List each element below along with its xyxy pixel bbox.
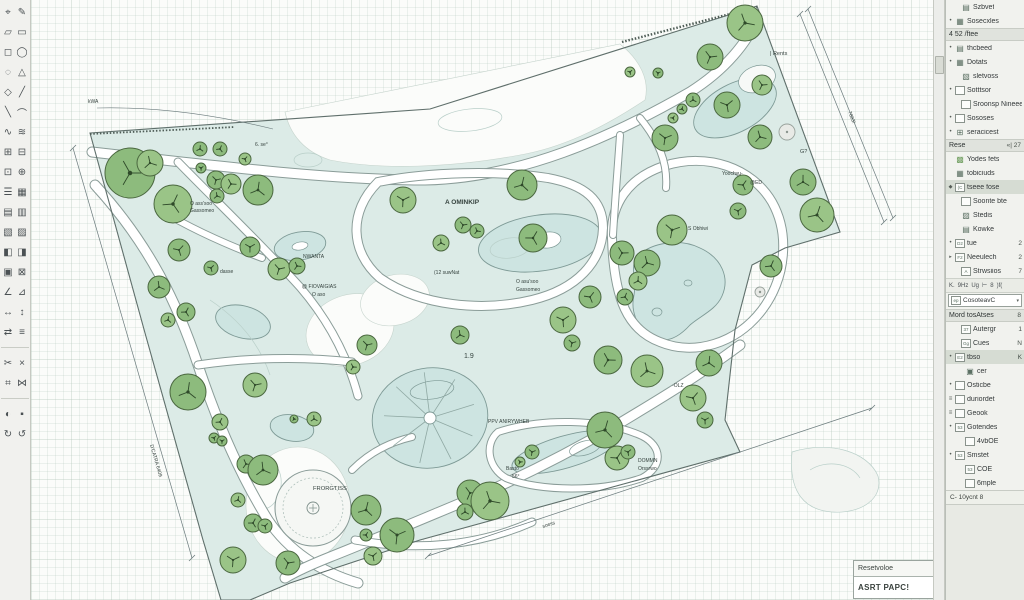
panel-item-label: Sosecxles — [967, 18, 999, 25]
layer-type-icon: ▧ — [961, 72, 971, 81]
visibility-bullet-icon: ≡ — [948, 396, 953, 402]
layer-type-icon: Gg — [961, 339, 971, 348]
panel-list-item[interactable]: ◆(Ctseee fose — [946, 180, 1024, 194]
tree-center — [519, 461, 521, 463]
tree-center — [802, 181, 804, 183]
layer-type-icon: ▤ — [955, 44, 965, 53]
panel-item-label: tseee fose — [967, 184, 999, 191]
layer-type-icon: ▦ — [955, 17, 965, 26]
panel-list-item[interactable]: AStrwsiios7 — [946, 264, 1024, 278]
plan-annotation: ◦OLZ — [672, 383, 684, 389]
checkbox-icon[interactable] — [961, 197, 971, 206]
dimension-tick — [881, 219, 887, 225]
move-vertical-icon[interactable]: ↕ — [15, 302, 29, 322]
drawing-canvas[interactable]: kWA6. se°| RentsA OMINKIPO ass'sooGassom… — [31, 0, 933, 600]
contour-line — [791, 447, 879, 512]
visibility-bullet-icon: • — [948, 424, 953, 430]
layer-type-icon: 53 — [955, 451, 965, 460]
layer-type-icon: ▦ — [955, 58, 965, 67]
plan-annotation: O aso — [312, 292, 326, 298]
plan-annotation: (12 suwNat — [434, 270, 460, 276]
panel-item-label: duriordet — [967, 396, 995, 403]
half-left-icon[interactable]: ◧ — [1, 242, 15, 262]
panel-list-item[interactable]: ▤Szbvet — [946, 0, 1024, 14]
right-panel: ▤Szbvet•▦Sosecxles4 52 /ftee•▤thcbeed•▦D… — [945, 0, 1024, 600]
tree-center — [395, 533, 398, 536]
panel-item-label: Cues — [973, 340, 989, 347]
tree-center — [571, 342, 573, 344]
plan-annotation: kWA — [88, 99, 99, 105]
tree-center — [709, 56, 711, 58]
tree-center — [237, 499, 239, 501]
polygon-tool-icon[interactable]: ▱ — [1, 22, 15, 42]
tree-center — [264, 525, 266, 527]
tree-center — [704, 419, 706, 421]
title-block-name: Resetvoloe — [858, 565, 893, 572]
tree-center — [296, 265, 298, 267]
checkbox-icon[interactable] — [955, 381, 965, 390]
item-count-badge: K — [1018, 354, 1022, 361]
undo-icon[interactable]: ↺ — [15, 424, 29, 444]
panel-item-label: Smstet — [967, 452, 989, 459]
layer-type-icon: ▨ — [961, 211, 971, 220]
layer-type-icon: 37 — [961, 325, 971, 334]
layer-type-icon: ▩ — [955, 155, 965, 164]
removed-tree-center — [786, 131, 788, 133]
tree-center — [476, 230, 478, 232]
plan-annotation: G? — [800, 149, 807, 155]
tree-center — [365, 509, 368, 512]
swatch-tool-icon[interactable]: ▪ — [15, 404, 29, 424]
panel-list-item[interactable]: •Sotttsor — [946, 83, 1024, 97]
waves-tool-icon[interactable]: ≋ — [15, 122, 29, 142]
plan-annotation: Gassomeo — [190, 208, 214, 214]
hatch-horizontal-icon[interactable]: ▤ — [1, 202, 15, 222]
fountain-hub — [424, 412, 436, 424]
mini-tool-icon[interactable]: ⊢ — [982, 282, 987, 289]
tree-center — [488, 499, 491, 502]
visibility-bullet-icon: • — [948, 129, 953, 135]
item-count-badge: N — [1017, 340, 1022, 347]
panel-list-item[interactable]: •E2tbsoK — [946, 350, 1024, 364]
visibility-bullet-icon: • — [948, 240, 953, 246]
combo-icon: ep — [951, 296, 961, 305]
panel-list-item[interactable]: ▨Stedis — [946, 208, 1024, 222]
checkbox-icon[interactable] — [955, 86, 965, 95]
panel-footer: C- 10ycnt 8 — [946, 490, 1024, 505]
tree-center — [464, 511, 466, 513]
panel-item-label: Geook — [967, 410, 988, 417]
panel-list-item[interactable]: •▦Sosecxles — [946, 14, 1024, 28]
square-tool-icon[interactable]: ◻ — [1, 42, 15, 62]
panel-list-item[interactable]: 6mple — [946, 476, 1024, 490]
visibility-bullet-icon: • — [948, 87, 953, 93]
tree-center — [562, 319, 564, 321]
layer-type-icon: ▤ — [961, 225, 971, 234]
tree-center — [815, 213, 818, 216]
line-tool-icon[interactable]: ╱ — [15, 82, 29, 102]
panel-item-label: seracicest — [967, 129, 999, 136]
panel-list-item[interactable]: •D2tue2 — [946, 236, 1024, 250]
grid-add-icon[interactable]: ⊞ — [1, 142, 15, 162]
tree-center — [616, 457, 618, 459]
checkbox-icon[interactable] — [955, 114, 965, 123]
layer-type-icon: ▤ — [961, 3, 971, 12]
tree-center — [708, 362, 710, 364]
panel-footer-label: C- 10ycnt 8 — [950, 494, 983, 501]
tree-center — [469, 492, 471, 494]
panel-item-label: Kowke — [973, 226, 994, 233]
list-tool-icon[interactable]: ≡ — [15, 322, 29, 342]
measure-tool-icon[interactable]: ∠ — [1, 282, 15, 302]
panel-list-item[interactable]: •▦Dotats — [946, 55, 1024, 69]
plan-annotation: DOMMN — [638, 458, 658, 464]
tree-center — [761, 84, 763, 86]
panel-item-label: Strwsiios — [973, 268, 1001, 275]
cell-tool-icon[interactable]: ⊡ — [1, 162, 15, 182]
plan-annotation: S Obhiwi — [688, 226, 708, 232]
tree-center — [440, 242, 442, 244]
tree-center — [262, 469, 265, 472]
tree-center — [213, 437, 215, 439]
plan-annotation: | Rents — [770, 51, 788, 57]
expand-arrow-icon[interactable]: ◆ — [948, 184, 953, 190]
scrollbar-handle[interactable] — [935, 56, 944, 74]
layer-type-icon: 53 — [965, 465, 975, 474]
tree-center — [352, 366, 354, 368]
panel-item-label: tobiciuds — [967, 170, 995, 177]
tree-center — [128, 171, 133, 176]
panel-item-label: cer — [977, 368, 987, 375]
draw-pencil-icon[interactable]: ✎ — [15, 2, 29, 22]
panel-item-label: 4vbOE — [977, 438, 998, 445]
mini-tool-icon[interactable]: K. — [949, 283, 955, 289]
tree-center — [603, 428, 606, 431]
hatch-pattern-icon[interactable]: ⌗ — [1, 373, 15, 393]
tree-center — [672, 117, 674, 119]
delete-tool-icon[interactable]: × — [15, 353, 29, 373]
plan-annotation: Basto — [506, 466, 519, 472]
panel-list-item[interactable]: Sroonsp Nineeer. — [946, 97, 1024, 111]
panel-list-item[interactable]: Soonte bte — [946, 194, 1024, 208]
checkbox-icon[interactable] — [965, 437, 975, 446]
plan-annotation: Gassomeo — [516, 287, 540, 293]
tree-center — [459, 334, 461, 336]
visibility-bullet-icon: ≡ — [948, 410, 953, 416]
tree-center — [252, 522, 254, 524]
slope-tool-icon[interactable]: ⊿ — [15, 282, 29, 302]
panel-list-item[interactable]: •53Smstet — [946, 448, 1024, 462]
tree-center — [278, 268, 280, 270]
hatch-dense-icon[interactable]: ▦ — [15, 182, 29, 202]
item-count-badge: 7 — [1018, 268, 1022, 275]
tree-center — [216, 195, 218, 197]
panel-item-label: tbso — [967, 354, 980, 361]
panel-item-label: Sotttsor — [967, 87, 991, 94]
tree-center — [185, 311, 187, 313]
tree-center — [178, 249, 180, 251]
toolbar-separator — [1, 393, 29, 399]
visibility-bullet-icon: • — [948, 45, 953, 51]
plan-annotation: @ED — [750, 180, 762, 186]
panel-list-item[interactable]: ▧sletvoss — [946, 69, 1024, 83]
layer-type-icon: ▣ — [965, 367, 975, 376]
dimension-tick — [869, 405, 875, 411]
tree-center — [293, 418, 295, 420]
tree-center — [692, 99, 694, 101]
panel-list-item[interactable]: 53COE — [946, 462, 1024, 476]
visibility-bullet-icon: • — [948, 354, 953, 360]
tree-center — [637, 280, 639, 282]
layer-type-icon: F2 — [955, 253, 965, 262]
tree-center — [219, 421, 221, 423]
tree-center — [681, 108, 683, 110]
panel-list-item[interactable]: ▸F2Neeulech2 — [946, 250, 1024, 264]
checkbox-icon[interactable] — [965, 479, 975, 488]
vertical-scrollbar[interactable] — [933, 0, 945, 600]
tree-center — [726, 104, 728, 106]
plan-annotation: Orssrwo — [638, 466, 657, 472]
tree-center — [589, 296, 591, 298]
tree-center — [607, 359, 610, 362]
panel-item-label: Dotats — [967, 59, 987, 66]
tree-center — [313, 418, 315, 420]
tree-center — [158, 286, 160, 288]
tree-center — [171, 202, 174, 205]
toolbar-separator — [1, 342, 29, 348]
tree-center — [646, 262, 648, 264]
panel-combo-row: epCosoteavC▾ — [946, 293, 1024, 309]
plan-annotation: PPV ANIRYWHEB — [488, 419, 530, 425]
tree-center — [230, 183, 232, 185]
tree-center — [149, 162, 151, 164]
diamond-tool-icon[interactable]: ◇ — [1, 82, 15, 102]
delete-region-icon[interactable]: ⊠ — [15, 262, 29, 282]
select-icon[interactable]: ⌖ — [1, 2, 15, 22]
item-count-badge: 2 — [1018, 240, 1022, 247]
tree-center — [531, 451, 533, 453]
panel-item-label: Neeulech — [967, 254, 997, 261]
tree-center — [671, 229, 674, 232]
checkbox-icon[interactable] — [955, 409, 965, 418]
tree-center — [372, 555, 374, 557]
tree-center — [664, 137, 666, 139]
tree-center — [692, 397, 694, 399]
tree-center — [167, 319, 169, 321]
plan-annotation: dasse — [220, 269, 234, 275]
section-header-label: Rese — [949, 142, 965, 149]
panel-list-item[interactable]: •53Gotendes — [946, 420, 1024, 434]
tree-center — [199, 148, 201, 150]
plan-annotation: soess — [542, 520, 557, 530]
panel-item-label: tue — [967, 240, 977, 247]
dimension-tick — [189, 555, 195, 561]
panel-list-item[interactable]: ≡duriordet — [946, 392, 1024, 406]
tree-center — [186, 390, 189, 393]
move-horizontal-icon[interactable]: ↔ — [1, 302, 15, 322]
mini-tool-icon[interactable]: 9Hz — [958, 283, 969, 289]
triangle-tool-icon[interactable]: △ — [15, 62, 29, 82]
fill-contrast-icon[interactable]: ◐ — [1, 404, 15, 424]
tree-center — [287, 562, 289, 564]
tree-center — [462, 224, 464, 226]
hatch-diag-left-icon[interactable]: ▧ — [1, 222, 15, 242]
tool-grid: ⌖✎▱▭◻◯◌△◇╱╲⌒∿≋⊞⊟⊡⊕☰▦▤▥▧▨◧◨▣⊠∠⊿↔↕⇄≡✂×⌗⋈◐▪… — [0, 2, 30, 444]
panel-list-item[interactable]: ▩Yodes fets — [946, 152, 1024, 166]
ellipse-tool-icon[interactable]: ◌ — [1, 62, 15, 82]
tree-center — [532, 237, 535, 240]
expand-arrow-icon[interactable]: ▸ — [948, 254, 953, 260]
tree-center — [219, 148, 221, 150]
panel-list-item[interactable]: •Osticbe — [946, 378, 1024, 392]
plan-annotation: Yoochvu- — [722, 171, 743, 177]
mini-tool-icon[interactable]: 8 — [990, 283, 993, 289]
plan-annotation: A OMINKIP — [445, 199, 480, 206]
layer-type-icon: (C — [955, 183, 965, 192]
tree-center — [366, 344, 368, 346]
visibility-bullet-icon: • — [948, 59, 953, 65]
tree-center — [657, 72, 659, 74]
plan-annotation: NWANTA — [303, 254, 325, 260]
right-panel-list: ▤Szbvet•▦Sosecxles4 52 /ftee•▤thcbeed•▦D… — [946, 0, 1024, 600]
tree-center — [249, 246, 251, 248]
hatch-vertical-icon[interactable]: ▥ — [15, 202, 29, 222]
tree-center — [737, 210, 739, 212]
layer-type-icon: E2 — [955, 353, 965, 362]
redo-icon[interactable]: ↻ — [1, 424, 15, 444]
plan-annotation: O ass'soo — [190, 201, 212, 207]
tree-center — [770, 265, 772, 267]
hatch-diag-right-icon[interactable]: ▨ — [15, 222, 29, 242]
tree-center — [521, 184, 524, 187]
half-right-icon[interactable]: ◨ — [15, 242, 29, 262]
panel-list-item[interactable]: 4vbOE — [946, 434, 1024, 448]
dimension-tick — [70, 145, 76, 151]
layer-type-icon: ⊞ — [955, 128, 965, 137]
checkbox-icon[interactable] — [955, 395, 965, 404]
panel-list-item[interactable]: GgCuesN — [946, 336, 1024, 350]
panel-section-header[interactable]: 4 52 /ftee — [946, 28, 1024, 41]
layer-type-icon: 53 — [955, 423, 965, 432]
checkbox-icon[interactable] — [961, 100, 971, 109]
dimension-tick — [805, 6, 811, 12]
rectangle-tool-icon[interactable]: ▭ — [15, 22, 29, 42]
panel-item-label: Stedis — [973, 212, 992, 219]
tree-center — [759, 136, 761, 138]
tree-center — [365, 534, 367, 536]
panel-item-label: Szbvet — [973, 4, 994, 11]
region-tool-icon[interactable]: ▣ — [1, 262, 15, 282]
tree-center — [624, 296, 626, 298]
spline-tool-icon[interactable]: ∿ — [1, 122, 15, 142]
tree-center — [742, 184, 744, 186]
tree-center — [627, 451, 629, 453]
mini-tool-icon[interactable]: Ug — [971, 283, 979, 289]
tree-center — [402, 199, 404, 201]
item-count-badge: 1 — [1018, 326, 1022, 333]
visibility-bullet-icon: • — [948, 115, 953, 121]
section-header-badge: 8 — [1017, 312, 1021, 319]
panel-list-item[interactable]: ▤Kowke — [946, 222, 1024, 236]
site-plan-drawing: kWA6. se°| RentsA OMINKIPO ass'sooGassom… — [31, 0, 933, 600]
tree-center — [621, 252, 623, 254]
trim-tool-icon[interactable]: ✂ — [1, 353, 15, 373]
tree-center — [257, 189, 260, 192]
panel-item-label: Gotendes — [967, 424, 997, 431]
visibility-bullet-icon: • — [948, 18, 953, 24]
visibility-bullet-icon: • — [948, 382, 953, 388]
tree-center — [210, 267, 212, 269]
dimension-tick — [890, 215, 896, 221]
tree-center — [646, 370, 649, 373]
tree-center — [245, 463, 247, 465]
plan-annotation: O asu'soo — [516, 279, 539, 285]
section-header-badge: «| 27 — [1007, 142, 1021, 149]
panel-empty-area — [946, 505, 1024, 600]
panel-item-label: Autergr — [973, 326, 996, 333]
panel-list-item[interactable]: 37Autergr1 — [946, 322, 1024, 336]
panel-item-label: Osticbe — [967, 382, 991, 389]
section-header-label: 4 52 /ftee — [949, 31, 978, 38]
layers-icon[interactable]: ☰ — [1, 182, 15, 202]
dimension-tick — [797, 11, 803, 17]
panel-item-label: sletvoss — [973, 73, 998, 80]
panel-item-label: Sososes — [967, 115, 994, 122]
panel-section-header[interactable]: Rese«| 27 — [946, 139, 1024, 152]
plan-annotation: 56° — [512, 474, 520, 480]
removed-tree-center — [759, 291, 761, 293]
plan-annotation: 6. se° — [255, 142, 268, 148]
panel-item-label: COE — [977, 466, 992, 473]
tree-center — [743, 21, 746, 24]
panel-list-item[interactable]: ▦tobiciuds — [946, 166, 1024, 180]
panel-list-item[interactable]: •Sososes — [946, 111, 1024, 125]
left-toolbar: ⌖✎▱▭◻◯◌△◇╱╲⌒∿≋⊞⊟⊡⊕☰▦▤▥▧▨◧◨▣⊠∠⊿↔↕⇄≡✂×⌗⋈◐▪… — [0, 0, 31, 600]
join-tool-icon[interactable]: ⋈ — [15, 373, 29, 393]
panel-item-label: Sroonsp Nineeer. — [973, 101, 1022, 108]
swap-tool-icon[interactable]: ⇄ — [1, 322, 15, 342]
tree-center — [629, 71, 631, 73]
arc-tool-icon[interactable]: ⌒ — [15, 102, 29, 122]
item-count-badge: 2 — [1018, 254, 1022, 261]
grid-remove-icon[interactable]: ⊟ — [15, 142, 29, 162]
add-point-icon[interactable]: ⊕ — [15, 162, 29, 182]
visibility-bullet-icon: • — [948, 452, 953, 458]
tree-center — [221, 440, 223, 442]
panel-list-item[interactable]: •⊞seracicest — [946, 125, 1024, 139]
tree-center — [244, 158, 246, 160]
dimension-tick — [425, 553, 431, 559]
panel-section-header[interactable]: Mord tosAtses8 — [946, 309, 1024, 322]
chevron-down-icon[interactable]: ▾ — [1016, 298, 1019, 304]
mini-tool-icon[interactable]: )f( — [997, 283, 1003, 289]
panel-item-label: Yodes fets — [967, 156, 999, 163]
panel-item-label: Soonte bte — [973, 198, 1007, 205]
layer-type-icon: D2 — [955, 239, 965, 248]
tree-center — [200, 167, 202, 169]
panel-list-item[interactable]: •▤thcbeed — [946, 41, 1024, 55]
line-alt-tool-icon[interactable]: ╲ — [1, 102, 15, 122]
panel-list-item[interactable]: ≡Geook — [946, 406, 1024, 420]
section-header-label: Mord tosAtses — [949, 312, 994, 319]
plan-annotation: 7883! — [846, 111, 856, 125]
panel-item-label: thcbeed — [967, 45, 992, 52]
style-combobox[interactable]: epCosoteavC▾ — [948, 294, 1022, 307]
tree-center — [215, 179, 217, 181]
circle-tool-icon[interactable]: ◯ — [15, 42, 29, 62]
plan-annotation: D'CATRA 6409 — [148, 444, 163, 478]
panel-list-item[interactable]: ▣cer — [946, 364, 1024, 378]
